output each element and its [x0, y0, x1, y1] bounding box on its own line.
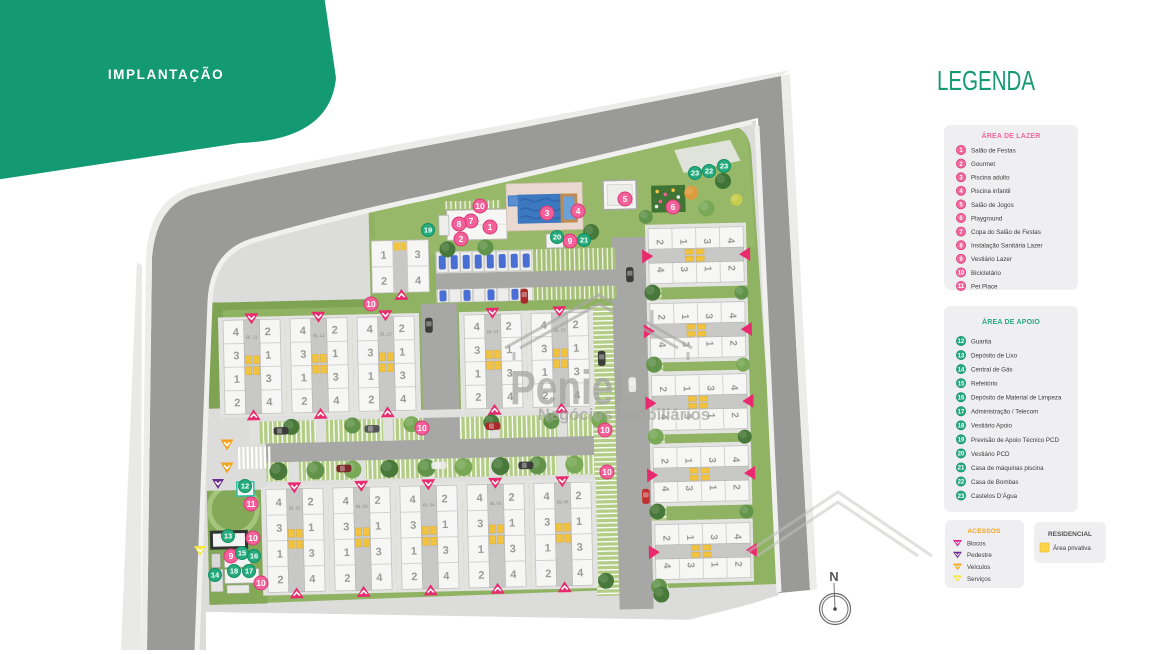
svg-text:1: 1 — [375, 520, 381, 532]
svg-text:3: 3 — [683, 485, 694, 491]
svg-text:22: 22 — [958, 480, 965, 486]
svg-text:3: 3 — [343, 521, 349, 533]
svg-text:Vestiário Lazer: Vestiário Lazer — [971, 256, 1012, 263]
svg-text:6: 6 — [671, 202, 676, 212]
svg-text:Negócios Imobiliários: Negócios Imobiliários — [538, 405, 710, 424]
svg-text:ACESSOS: ACESSOS — [967, 528, 1001, 535]
svg-text:Central de Gás: Central de Gás — [971, 367, 1013, 374]
svg-text:1: 1 — [368, 371, 374, 383]
svg-text:2: 2 — [234, 397, 240, 409]
svg-text:1: 1 — [478, 544, 484, 556]
svg-text:18: 18 — [958, 424, 965, 430]
svg-text:Serviços: Serviços — [967, 576, 991, 583]
svg-text:Depósito de Lixo: Depósito de Lixo — [971, 352, 1018, 359]
svg-text:10: 10 — [248, 533, 258, 543]
svg-text:Previsão de Apoio Técnico PCD: Previsão de Apoio Técnico PCD — [971, 437, 1059, 444]
svg-text:10: 10 — [256, 578, 266, 588]
svg-text:BL 02: BL 02 — [289, 505, 301, 510]
svg-text:1: 1 — [684, 535, 695, 541]
svg-text:Salão de Jogos: Salão de Jogos — [971, 202, 1014, 209]
svg-text:1: 1 — [411, 545, 417, 557]
svg-text:3: 3 — [309, 548, 315, 560]
svg-text:2: 2 — [654, 239, 665, 245]
svg-text:1: 1 — [509, 517, 515, 529]
svg-text:1: 1 — [399, 347, 405, 359]
svg-text:3: 3 — [414, 249, 420, 261]
svg-text:3: 3 — [376, 546, 382, 558]
svg-text:BL 14: BL 14 — [487, 329, 499, 334]
svg-text:4: 4 — [730, 457, 741, 463]
svg-text:2: 2 — [657, 386, 668, 392]
svg-text:23: 23 — [691, 169, 699, 178]
svg-text:1: 1 — [677, 239, 688, 245]
svg-text:2: 2 — [399, 323, 405, 335]
svg-text:Veículos: Veículos — [967, 564, 990, 571]
svg-text:2: 2 — [659, 458, 670, 464]
svg-text:3: 3 — [704, 385, 715, 391]
svg-text:4: 4 — [656, 342, 667, 348]
svg-text:3: 3 — [410, 520, 416, 532]
svg-text:4: 4 — [726, 313, 737, 319]
svg-text:2: 2 — [265, 326, 271, 338]
svg-text:14: 14 — [958, 367, 965, 373]
svg-text:BL 03: BL 03 — [356, 504, 368, 509]
svg-text:4: 4 — [661, 563, 672, 569]
svg-text:3: 3 — [544, 517, 550, 529]
svg-text:1: 1 — [573, 343, 579, 355]
svg-text:1: 1 — [380, 250, 386, 262]
svg-text:LEGENDA: LEGENDA — [937, 65, 1035, 96]
svg-text:BL 12: BL 12 — [313, 333, 325, 338]
svg-text:4: 4 — [725, 238, 736, 244]
svg-text:Pet Place: Pet Place — [971, 283, 998, 290]
svg-text:17: 17 — [245, 567, 253, 576]
svg-text:9: 9 — [229, 551, 234, 561]
svg-text:9: 9 — [568, 236, 573, 246]
svg-text:2: 2 — [277, 574, 283, 586]
svg-text:BL 13: BL 13 — [380, 331, 392, 336]
svg-text:Pedestre: Pedestre — [967, 552, 992, 559]
svg-text:20: 20 — [553, 233, 561, 242]
svg-text:1: 1 — [702, 266, 713, 272]
svg-text:Refeitório: Refeitório — [971, 381, 998, 388]
svg-text:1: 1 — [442, 519, 448, 531]
svg-text:4: 4 — [654, 267, 665, 273]
svg-text:4: 4 — [576, 206, 581, 216]
svg-text:3: 3 — [545, 208, 550, 218]
svg-text:10: 10 — [417, 423, 427, 433]
svg-text:3: 3 — [703, 313, 714, 319]
svg-text:1: 1 — [344, 547, 350, 559]
svg-text:Casa de Bombas: Casa de Bombas — [971, 479, 1018, 486]
svg-text:2: 2 — [575, 490, 581, 502]
svg-text:1: 1 — [475, 368, 481, 380]
svg-text:1: 1 — [488, 222, 493, 232]
svg-text:1: 1 — [707, 485, 718, 491]
svg-text:20: 20 — [958, 452, 965, 458]
svg-text:16: 16 — [958, 395, 965, 401]
svg-text:Piscina adulto: Piscina adulto — [971, 175, 1010, 182]
svg-text:21: 21 — [580, 236, 588, 245]
svg-text:8: 8 — [457, 219, 462, 229]
svg-text:1: 1 — [308, 522, 314, 534]
svg-text:1: 1 — [265, 350, 271, 362]
svg-text:13: 13 — [958, 353, 965, 359]
svg-text:1: 1 — [703, 341, 714, 347]
svg-text:2: 2 — [660, 535, 671, 541]
svg-text:2: 2 — [655, 314, 666, 320]
svg-text:3: 3 — [400, 370, 406, 382]
svg-text:IMPLANTAÇÃO: IMPLANTAÇÃO — [108, 67, 224, 82]
svg-text:2: 2 — [411, 571, 417, 583]
svg-text:19: 19 — [424, 226, 432, 235]
svg-text:Instalação Sanitária Lazer: Instalação Sanitária Lazer — [971, 243, 1043, 250]
svg-text:23: 23 — [720, 162, 728, 171]
svg-text:Bicicletário: Bicicletário — [971, 270, 1001, 277]
svg-text:RESIDENCIAL: RESIDENCIAL — [1048, 531, 1092, 538]
svg-text:Guarita: Guarita — [971, 338, 992, 345]
svg-text:3: 3 — [233, 350, 239, 362]
svg-text:3: 3 — [266, 373, 272, 385]
svg-text:18: 18 — [230, 567, 238, 576]
svg-text:1: 1 — [681, 386, 692, 392]
svg-text:7: 7 — [469, 216, 474, 226]
svg-text:Vestiário Apoio: Vestiário Apoio — [971, 423, 1012, 430]
svg-text:2: 2 — [459, 234, 464, 244]
svg-text:Blocos: Blocos — [967, 540, 986, 547]
svg-text:1: 1 — [545, 542, 551, 554]
svg-text:1: 1 — [679, 314, 690, 320]
svg-text:4: 4 — [732, 534, 743, 540]
svg-text:ÁREA DE LAZER: ÁREA DE LAZER — [981, 131, 1040, 140]
svg-text:3: 3 — [477, 518, 483, 530]
svg-text:Piscina infantil: Piscina infantil — [971, 188, 1011, 195]
svg-text:3: 3 — [510, 543, 516, 555]
svg-text:22: 22 — [705, 167, 713, 176]
svg-text:BL 05: BL 05 — [490, 501, 502, 506]
svg-text:4: 4 — [728, 385, 739, 391]
svg-text:3: 3 — [706, 457, 717, 463]
svg-text:Castelos D’Água: Castelos D’Água — [971, 493, 1018, 500]
svg-text:3: 3 — [443, 545, 449, 557]
svg-text:3: 3 — [701, 238, 712, 244]
svg-text:2: 2 — [508, 492, 514, 504]
svg-text:3: 3 — [333, 372, 339, 384]
svg-text:3: 3 — [678, 266, 689, 272]
svg-text:BL 06: BL 06 — [557, 499, 569, 504]
svg-text:3: 3 — [474, 345, 480, 357]
svg-text:2: 2 — [307, 496, 313, 508]
svg-text:3: 3 — [541, 343, 547, 355]
svg-text:2: 2 — [730, 484, 741, 490]
svg-text:2: 2 — [475, 392, 481, 404]
svg-text:12: 12 — [241, 482, 249, 491]
svg-text:2: 2 — [381, 276, 387, 288]
svg-text:2: 2 — [572, 319, 578, 331]
svg-text:2: 2 — [505, 321, 511, 333]
svg-text:4: 4 — [659, 486, 670, 492]
svg-text:3: 3 — [577, 542, 583, 554]
svg-text:ÁREA DE APOIO: ÁREA DE APOIO — [982, 317, 1040, 326]
svg-text:10: 10 — [602, 467, 612, 477]
svg-text:1: 1 — [708, 562, 719, 568]
svg-text:13: 13 — [224, 532, 232, 541]
svg-text:Salão de Festas: Salão de Festas — [971, 147, 1016, 154]
svg-text:2: 2 — [727, 340, 738, 346]
svg-text:3: 3 — [708, 534, 719, 540]
svg-text:17: 17 — [958, 409, 965, 415]
svg-text:Copa do Salão de Festas: Copa do Salão de Festas — [971, 229, 1041, 236]
svg-text:Playground: Playground — [971, 215, 1003, 222]
svg-text:BL 04: BL 04 — [423, 502, 435, 507]
svg-text:Administração / Telecom: Administração / Telecom — [971, 409, 1038, 416]
svg-text:2: 2 — [344, 573, 350, 585]
svg-text:3: 3 — [367, 347, 373, 359]
svg-text:2: 2 — [368, 394, 374, 406]
svg-text:1: 1 — [301, 372, 307, 384]
svg-text:2: 2 — [332, 325, 338, 337]
svg-text:2: 2 — [545, 568, 551, 580]
svg-text:Vestiário PCD: Vestiário PCD — [971, 451, 1010, 458]
svg-text:21: 21 — [958, 466, 965, 472]
svg-text:14: 14 — [211, 571, 220, 580]
svg-text:2: 2 — [478, 570, 484, 582]
svg-text:Depósito de Material de Limpez: Depósito de Material de Limpeza — [971, 395, 1062, 402]
svg-text:Gourmet: Gourmet — [971, 161, 995, 168]
svg-text:3: 3 — [300, 349, 306, 361]
svg-text:N: N — [829, 569, 838, 584]
svg-text:Casa de máquinas piscina: Casa de máquinas piscina — [971, 465, 1044, 472]
svg-text:2: 2 — [441, 493, 447, 505]
svg-text:1: 1 — [234, 374, 240, 386]
svg-text:3: 3 — [276, 523, 282, 535]
svg-text:Área privativa: Área privativa — [1053, 545, 1091, 552]
svg-text:19: 19 — [958, 438, 965, 444]
svg-text:1: 1 — [277, 548, 283, 560]
svg-text:16: 16 — [250, 552, 258, 561]
svg-text:10: 10 — [475, 201, 485, 211]
svg-text:1: 1 — [332, 348, 338, 360]
svg-text:1: 1 — [576, 516, 582, 528]
svg-text:2: 2 — [374, 495, 380, 507]
svg-text:2: 2 — [301, 396, 307, 408]
svg-text:10: 10 — [958, 271, 965, 277]
svg-text:5: 5 — [623, 194, 628, 204]
svg-text:3: 3 — [685, 562, 696, 568]
svg-text:2: 2 — [732, 561, 743, 567]
svg-text:11: 11 — [958, 284, 965, 290]
svg-text:2: 2 — [725, 265, 736, 271]
svg-text:15: 15 — [958, 381, 965, 387]
svg-text:10: 10 — [366, 299, 376, 309]
svg-text:11: 11 — [247, 499, 256, 509]
svg-text:2: 2 — [729, 412, 740, 418]
svg-text:1: 1 — [682, 458, 693, 464]
svg-text:10: 10 — [600, 425, 610, 435]
svg-text:15: 15 — [238, 549, 246, 558]
svg-text:12: 12 — [958, 339, 965, 345]
svg-text:BL 11: BL 11 — [246, 334, 258, 339]
svg-text:23: 23 — [958, 494, 965, 500]
